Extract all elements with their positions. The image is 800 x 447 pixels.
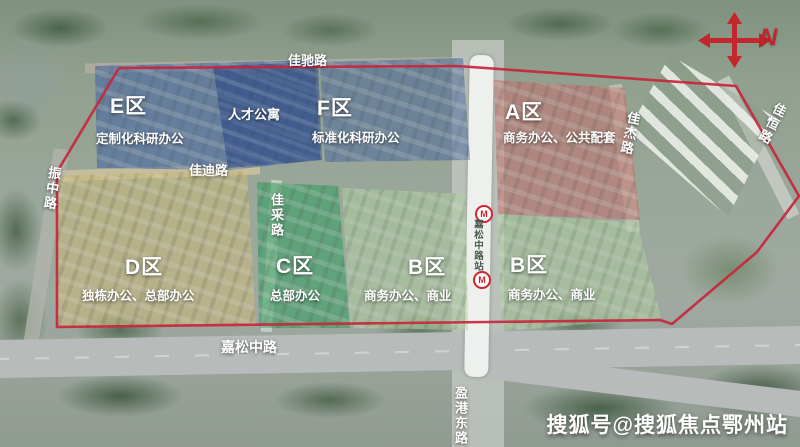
zone-f-code-label: F区 — [317, 92, 353, 122]
road-label-jiachi: 佳驰路 — [288, 50, 327, 69]
zone-b2-code-label: B区 — [510, 249, 548, 279]
zone-a-code-label: A区 — [505, 96, 543, 126]
shanghai-metro-logo-icon: M — [473, 271, 491, 289]
site-boundary-line — [0, 0, 800, 447]
road-label-jiadi: 佳迪路 — [189, 160, 228, 179]
metro-station-label: 嘉松中路站 — [470, 219, 484, 272]
zone-f-desc-label: 标准化科研办公 — [312, 127, 400, 146]
talent-apartment-label: 人才公寓 — [228, 104, 280, 123]
zone-b2-desc-label: 商务办公、商业 — [508, 284, 596, 303]
road-label-jiacai: 佳采路 — [267, 193, 286, 238]
compass-north-label: N — [760, 24, 777, 52]
watermark-text: 搜狐号@搜狐焦点鄂州站 — [547, 409, 788, 439]
zone-e-desc-label: 定制化科研办公 — [96, 128, 184, 147]
zone-a-desc-label: 商务办公、公共配套 — [503, 127, 616, 146]
site-plan-aerial-map: M M 嘉松中路站 E区 定制化科研办公 人才公寓 F区 标准化科研办公 A区 … — [0, 0, 800, 447]
road-label-jiasong: 嘉松中路 — [221, 337, 277, 357]
zone-d-desc-label: 独栋办公、总部办公 — [82, 285, 195, 304]
zone-e-code-label: E区 — [110, 90, 147, 120]
zone-b1-code-label: B区 — [408, 251, 446, 281]
road-label-yinggang: 盈港东路 — [451, 386, 470, 446]
zone-b1-desc-label: 商务办公、商业 — [364, 285, 452, 304]
zone-d-code-label: D区 — [125, 251, 163, 281]
zone-c-code-label: C区 — [276, 250, 314, 280]
zone-c-desc-label: 总部办公 — [270, 285, 320, 304]
